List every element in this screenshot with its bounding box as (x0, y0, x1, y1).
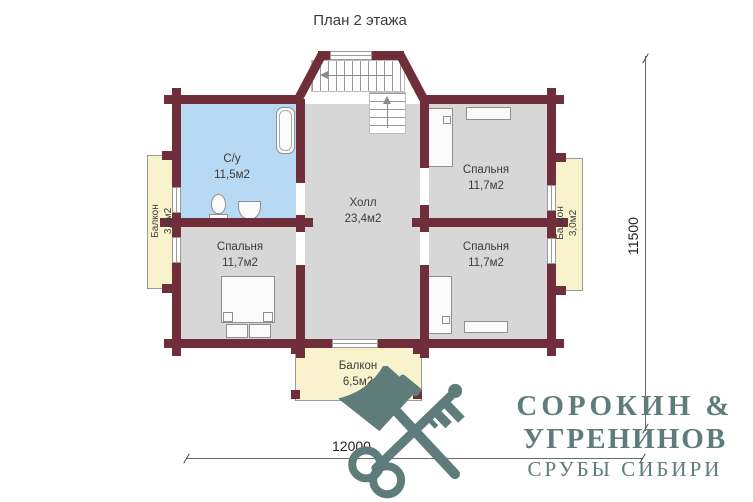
balcony-right-label: Балкон 3,0м2 (554, 188, 580, 258)
wall-top-right (424, 95, 564, 104)
shelf (466, 107, 511, 120)
room-area: 11,7м2 (451, 256, 521, 272)
stair-arrow-head (320, 71, 328, 79)
door-opening (296, 183, 305, 215)
room-name: С/у (197, 152, 267, 168)
nightstand (249, 324, 271, 338)
room-area: 3,0м2 (568, 210, 579, 236)
pillow (223, 312, 233, 322)
floor-plan-page: План 2 этажа (0, 0, 753, 502)
room-area: 23,4м2 (328, 212, 398, 228)
logo-line1: СОРОКИН & (500, 392, 750, 421)
balcony-post (291, 390, 300, 399)
room-name: Балкон (150, 204, 161, 238)
room-name: Спальня (451, 240, 521, 256)
dimension-height-value: 11500 (625, 211, 641, 261)
pillow (442, 316, 450, 324)
log-end (162, 284, 172, 293)
log-end (420, 348, 429, 358)
nightstand (226, 324, 248, 338)
log-end (556, 286, 566, 295)
toilet-icon (211, 194, 226, 214)
wall-bedroom-hall (296, 265, 305, 348)
log-end (296, 348, 305, 358)
room-name: Спальня (205, 240, 275, 256)
logo-line3: СРУБЫ СИБИРИ (500, 457, 750, 482)
wall-mid-right (412, 218, 552, 227)
stair-arrow (387, 102, 388, 128)
room-name: Спальня (451, 163, 521, 179)
wall-top-left (164, 95, 300, 104)
wall-hall-bedroom-br (420, 265, 429, 348)
shelf (464, 321, 508, 333)
room-area: 11,5м2 (197, 168, 267, 184)
bedroom-top-right-label: Спальня 11,7м2 (451, 163, 521, 194)
room-area: 11,7м2 (205, 256, 275, 272)
door-opening (420, 168, 429, 205)
door-opening (296, 232, 305, 265)
bed-icon (425, 276, 452, 334)
bedroom-bottom-left-label: Спальня 11,7м2 (205, 240, 275, 271)
balcony-left-label: Балкон 3,0м2 (149, 186, 175, 256)
balcony-door (332, 339, 378, 348)
pillow (443, 116, 451, 124)
logo-line2: УГРЕНИНОВ (500, 424, 750, 454)
room-area: 3,0м2 (163, 208, 174, 234)
log-end (162, 151, 172, 160)
door-opening (420, 232, 429, 265)
log-end (556, 153, 566, 162)
bathtub-icon (276, 107, 295, 154)
page-title: План 2 этажа (260, 12, 460, 29)
window (330, 51, 372, 60)
wall-bathroom-hall (296, 99, 305, 183)
axe-key-crossed-icon (336, 366, 488, 502)
wall-mid-left (177, 218, 313, 227)
room-name: Холл (328, 196, 398, 212)
bathroom-label: С/у 11,5м2 (197, 152, 267, 183)
pillow (263, 312, 273, 322)
hall-label: Холл 23,4м2 (328, 196, 398, 227)
dimension-line-vertical (645, 56, 646, 431)
stair-arrow-head (383, 96, 391, 104)
bedroom-bottom-right-label: Спальня 11,7м2 (451, 240, 521, 271)
room-area: 11,7м2 (451, 179, 521, 195)
room-name: Балкон (555, 206, 566, 240)
wall-hall-bedroom-tr (420, 99, 429, 168)
stair-arrow (327, 75, 393, 76)
